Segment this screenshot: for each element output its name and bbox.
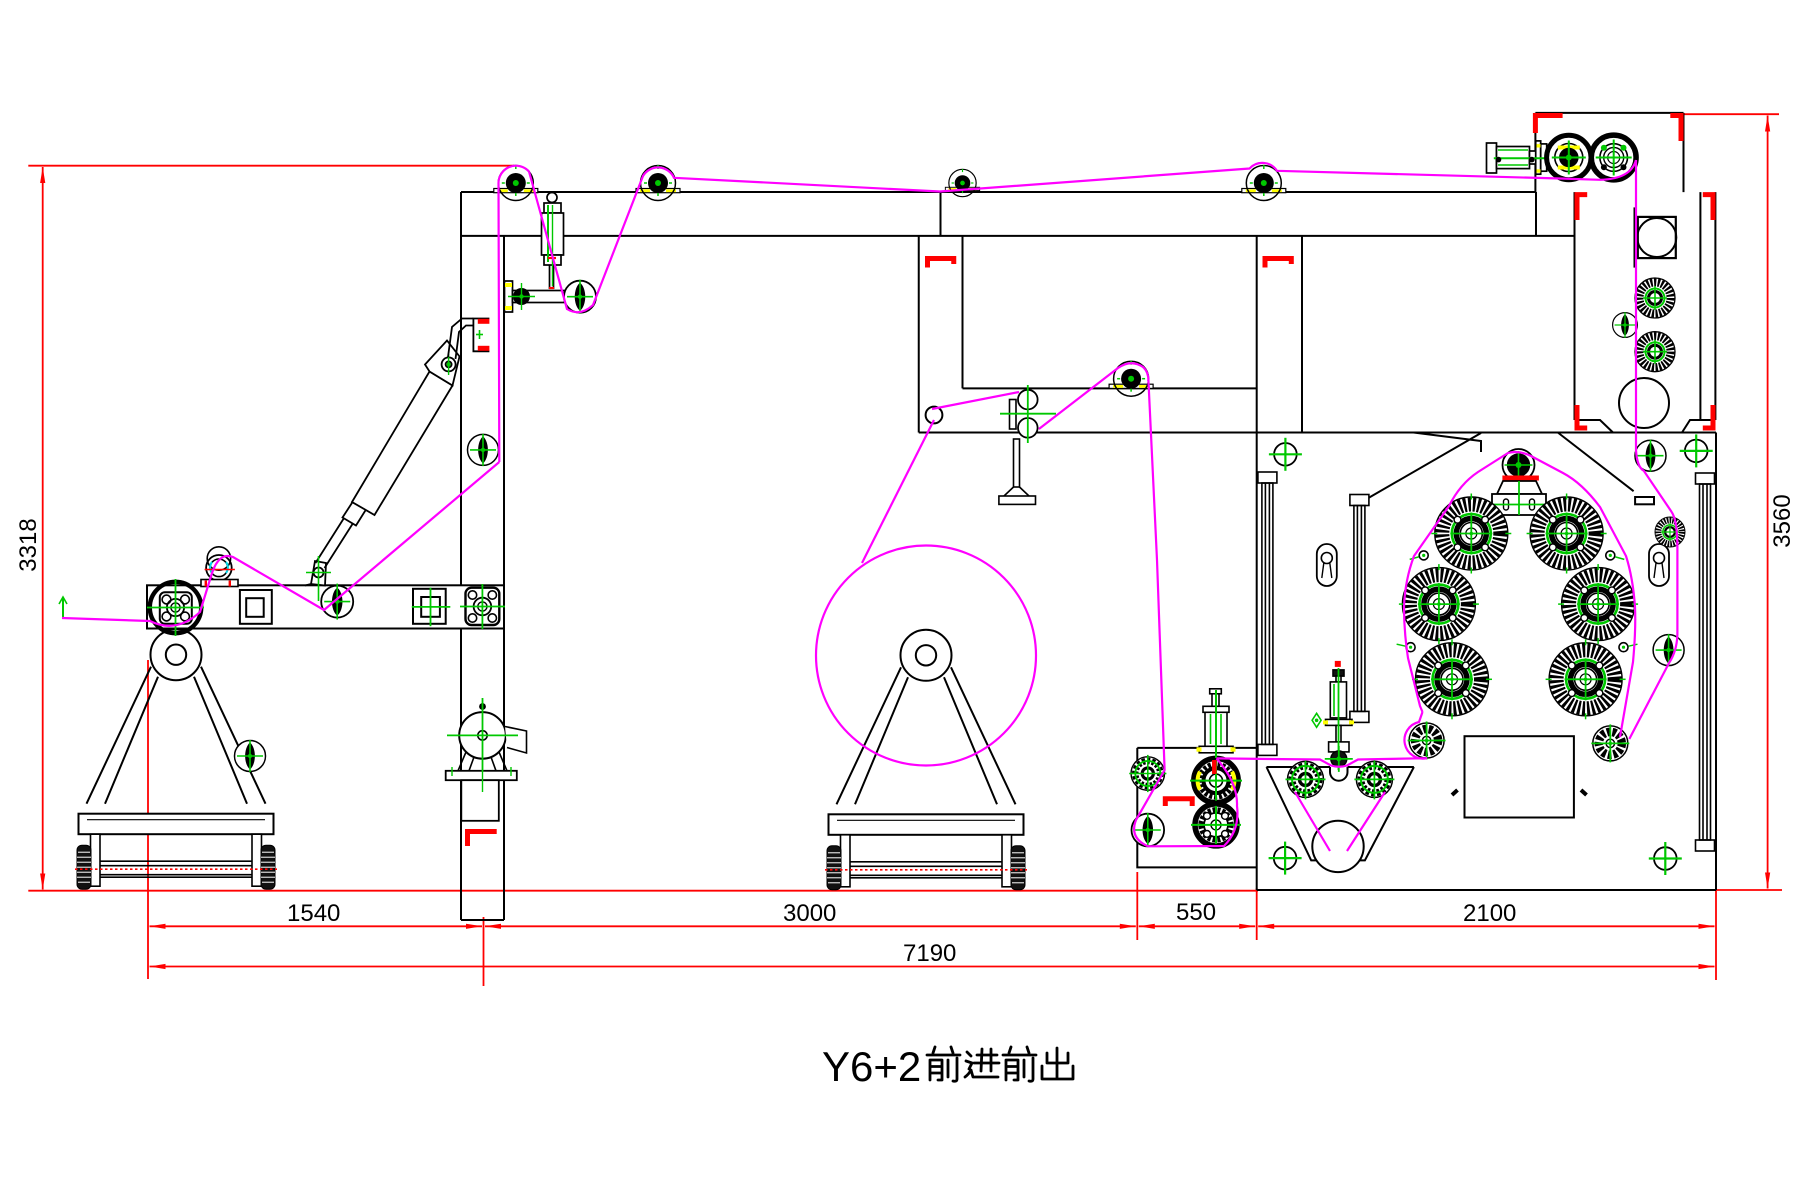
svg-text:7190: 7190: [903, 940, 956, 967]
svg-text:3318: 3318: [15, 518, 42, 571]
svg-text:Y6+2: Y6+2: [822, 1043, 921, 1090]
svg-text:3000: 3000: [783, 900, 836, 927]
svg-text:1540: 1540: [287, 900, 340, 927]
svg-text:550: 550: [1176, 899, 1216, 926]
svg-text:2100: 2100: [1463, 900, 1516, 927]
svg-text:3560: 3560: [1769, 494, 1796, 547]
